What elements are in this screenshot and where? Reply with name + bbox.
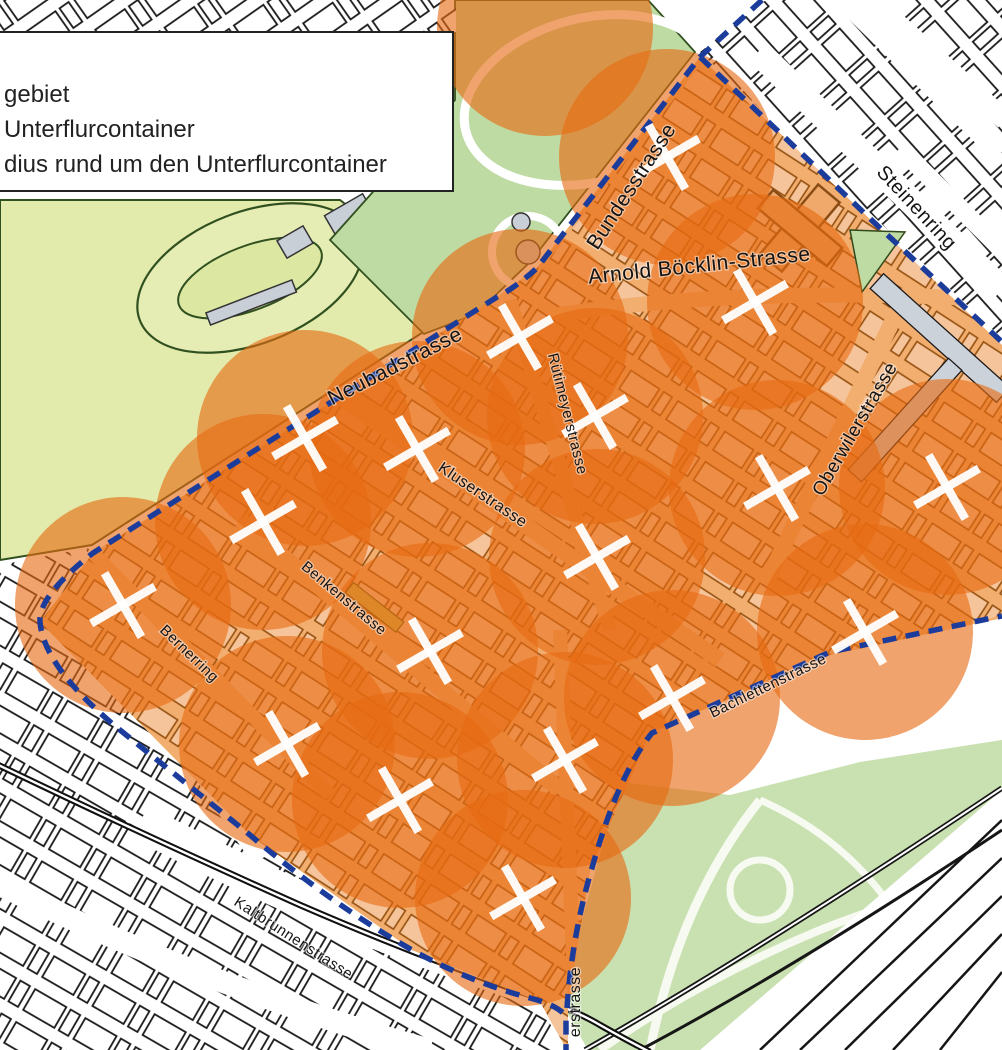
- legend-entry-area: gebiet: [4, 77, 452, 112]
- legend-box: gebiet Unterflurcontainer dius rund um d…: [0, 31, 454, 192]
- legend-entry-container: Unterflurcontainer: [4, 112, 452, 147]
- legend-entry-radius: dius rund um den Unterflurcontainer: [4, 147, 452, 182]
- outer-blocks-top-left: [0, 0, 456, 32]
- street-label: erstrasse: [567, 967, 584, 1037]
